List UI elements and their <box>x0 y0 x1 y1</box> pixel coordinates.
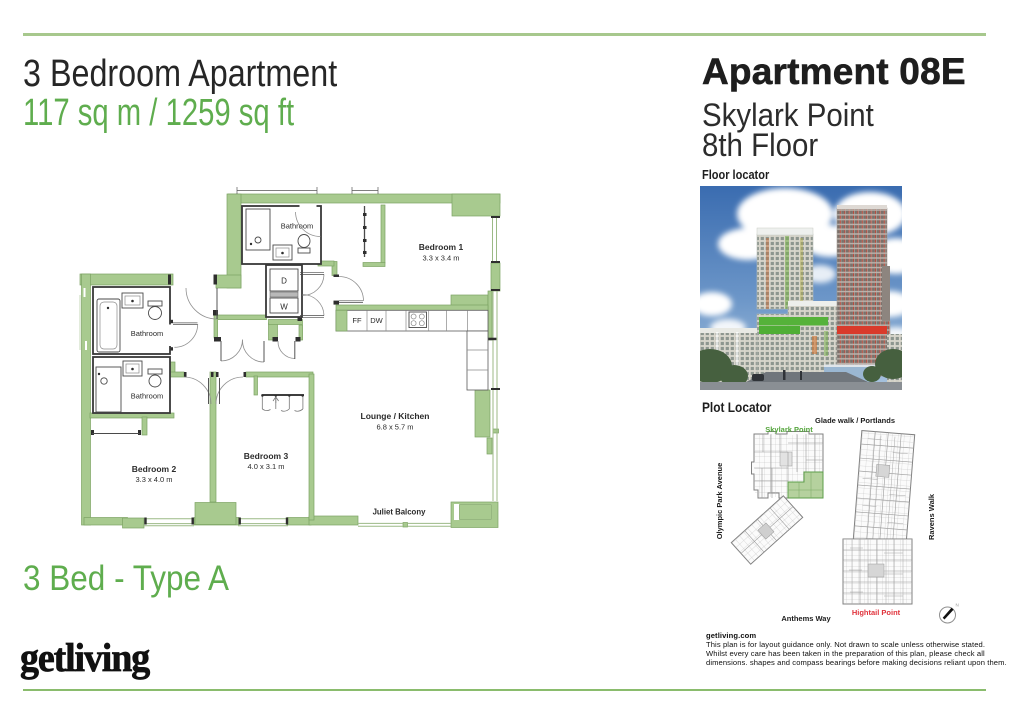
svg-text:D: D <box>281 277 287 286</box>
svg-text:Lounge / Kitchen: Lounge / Kitchen <box>361 411 430 421</box>
svg-text:Juliet Balcony: Juliet Balcony <box>373 508 427 517</box>
svg-text:Anthems Way: Anthems Way <box>781 614 831 623</box>
svg-text:Bathroom: Bathroom <box>281 222 314 231</box>
svg-text:FF: FF <box>352 316 362 325</box>
svg-text:DW: DW <box>370 316 383 325</box>
svg-text:Glade walk / Portlands: Glade walk / Portlands <box>815 416 895 425</box>
svg-text:Bedroom 1: Bedroom 1 <box>419 242 464 252</box>
svg-text:3.3 x 3.4 m: 3.3 x 3.4 m <box>422 254 459 263</box>
svg-text:3.3 x 4.0 m: 3.3 x 4.0 m <box>135 475 172 484</box>
svg-text:Bedroom 3: Bedroom 3 <box>244 451 289 461</box>
svg-text:Ravens Walk: Ravens Walk <box>927 493 936 540</box>
svg-text:N: N <box>956 603 959 608</box>
svg-text:Bathroom: Bathroom <box>131 392 164 401</box>
svg-text:4.0 x 3.1 m: 4.0 x 3.1 m <box>247 462 284 471</box>
svg-text:Olympic Park Avenue: Olympic Park Avenue <box>715 463 724 540</box>
svg-text:6.8 x 5.7 m: 6.8 x 5.7 m <box>376 423 413 432</box>
svg-text:Hightail Point: Hightail Point <box>852 608 901 617</box>
svg-text:Skylark Point: Skylark Point <box>765 425 813 434</box>
svg-text:Bathroom: Bathroom <box>131 329 164 338</box>
svg-text:W: W <box>280 303 288 312</box>
svg-text:Bedroom 2: Bedroom 2 <box>132 464 177 474</box>
